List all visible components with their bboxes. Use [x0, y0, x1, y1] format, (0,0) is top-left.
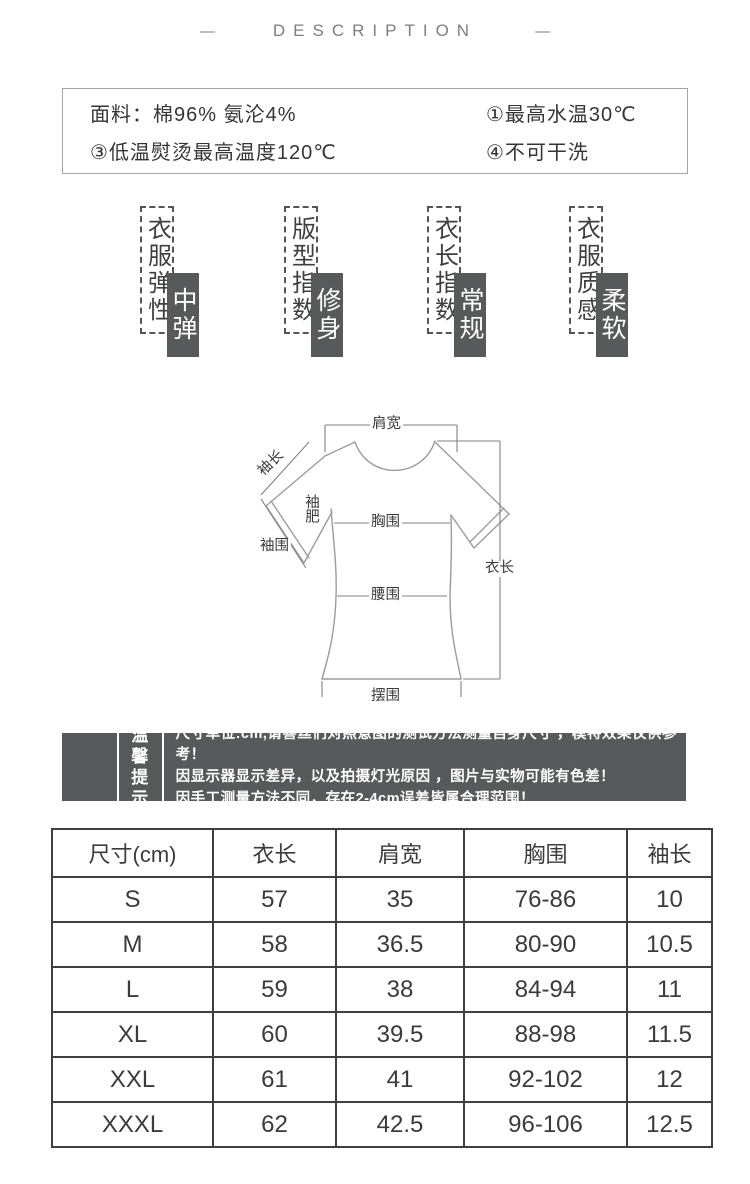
- cell-sleeve: 10.5: [627, 922, 712, 967]
- sleeve-width-label: 袖肥: [302, 492, 318, 525]
- badge-line-1: 温馨: [123, 725, 158, 768]
- table-row-xxl: XXL 61 41 92-102 12: [52, 1057, 712, 1102]
- cell-length: 61: [213, 1057, 336, 1102]
- cell-sleeve: 11: [627, 967, 712, 1012]
- col-header-sleeve: 袖长: [627, 829, 712, 877]
- table-row-m: M 58 36.5 80-90 10.5: [52, 922, 712, 967]
- cell-sleeve: 10: [627, 877, 712, 922]
- hem-label: 摆围: [369, 689, 402, 705]
- cell-length: 62: [213, 1102, 336, 1147]
- table-row-xl: XL 60 39.5 88-98 11.5: [52, 1012, 712, 1057]
- cell-sleeve: 12.5: [627, 1102, 712, 1147]
- cell-sleeve: 12: [627, 1057, 712, 1102]
- cell-shoulder: 36.5: [336, 922, 464, 967]
- badge-line-2: 提示: [123, 767, 158, 810]
- tips-line-2: 因显示器显示差异，以及拍摄灯光原因 ，图片与实物可能有色差！: [176, 767, 686, 789]
- care-info-box: 面料：棉96% 氨沦4% ①最高水温30℃ ③低温熨烫最高温度120℃ ④不可干…: [62, 88, 688, 174]
- cell-chest: 92-102: [464, 1057, 627, 1102]
- tips-line-1: 尺寸单位:cm,请喜丝们对照意图的测试方法测量自身尺寸 ，模特效果仅供参考！: [176, 724, 686, 768]
- shoulder-width-label: 肩宽: [370, 417, 403, 433]
- size-table: 尺寸(cm) 衣长 肩宽 胸围 袖长 S 57 35 76-86 10 M 58…: [51, 828, 713, 1148]
- cell-chest: 76-86: [464, 877, 627, 922]
- cell-size: XXL: [52, 1057, 213, 1102]
- warm-tips-badge: 温馨 提示: [117, 721, 164, 814]
- cell-size: M: [52, 922, 213, 967]
- care-no-dry-clean: ④不可干洗: [486, 136, 687, 165]
- cell-shoulder: 42.5: [336, 1102, 464, 1147]
- description-header: — DESCRIPTION —: [0, 16, 750, 46]
- attribute-fit-index: 版型指数 修身: [284, 206, 346, 358]
- warm-tips-bar: 温馨 提示 尺寸单位:cm,请喜丝们对照意图的测试方法测量自身尺寸 ，模特效果仅…: [62, 733, 686, 801]
- attribute-length-index: 衣长指数 常规: [427, 206, 489, 358]
- cell-sleeve: 11.5: [627, 1012, 712, 1057]
- col-header-size: 尺寸(cm): [52, 829, 213, 877]
- header-left-dash: —: [200, 23, 215, 40]
- cell-chest: 80-90: [464, 922, 627, 967]
- size-table-header-row: 尺寸(cm) 衣长 肩宽 胸围 袖长: [52, 829, 712, 877]
- cell-chest: 88-98: [464, 1012, 627, 1057]
- attribute-elasticity: 衣服弹性 中弹: [140, 206, 202, 358]
- care-max-water-temp: ①最高水温30℃: [486, 98, 687, 127]
- header-right-dash: —: [535, 23, 550, 40]
- warm-tips-text: 尺寸单位:cm,请喜丝们对照意图的测试方法测量自身尺寸 ，模特效果仅供参考！ 因…: [176, 724, 686, 811]
- tips-line-3: 因手工测量方法不同，存在2-4cm误差皆属合理范围！: [176, 789, 686, 811]
- col-header-length: 衣长: [213, 829, 336, 877]
- cell-length: 60: [213, 1012, 336, 1057]
- fabric-composition: 面料：棉96% 氨沦4%: [90, 98, 486, 127]
- page-title: DESCRIPTION: [273, 21, 477, 41]
- chest-label: 胸围: [369, 515, 402, 531]
- table-row-l: L 59 38 84-94 11: [52, 967, 712, 1012]
- attribute-value: 常规: [454, 273, 486, 357]
- cell-shoulder: 35: [336, 877, 464, 922]
- garment-length-label: 衣长: [483, 561, 516, 577]
- cell-length: 59: [213, 967, 336, 1012]
- cell-chest: 96-106: [464, 1102, 627, 1147]
- cell-size: XXXL: [52, 1102, 213, 1147]
- attribute-texture: 衣服质感 柔软: [569, 206, 631, 358]
- cell-shoulder: 39.5: [336, 1012, 464, 1057]
- cuff-label: 袖围: [258, 539, 291, 555]
- col-header-chest: 胸围: [464, 829, 627, 877]
- table-row-s: S 57 35 76-86 10: [52, 877, 712, 922]
- cell-size: XL: [52, 1012, 213, 1057]
- attribute-value: 修身: [311, 273, 343, 357]
- care-ironing-temp: ③低温熨烫最高温度120℃: [90, 136, 486, 165]
- cell-chest: 84-94: [464, 967, 627, 1012]
- attribute-value: 柔软: [596, 273, 628, 357]
- cell-size: S: [52, 877, 213, 922]
- col-header-shoulder: 肩宽: [336, 829, 464, 877]
- attribute-value: 中弹: [167, 273, 199, 357]
- cell-shoulder: 38: [336, 967, 464, 1012]
- cell-length: 58: [213, 922, 336, 967]
- measurement-diagram: 肩宽 袖长 袖肥 胸围 袖围 衣长 腰围 摆围: [230, 396, 540, 726]
- waist-label: 腰围: [369, 588, 402, 604]
- cell-size: L: [52, 967, 213, 1012]
- table-row-xxxl: XXXL 62 42.5 96-106 12.5: [52, 1102, 712, 1147]
- cell-shoulder: 41: [336, 1057, 464, 1102]
- cell-length: 57: [213, 877, 336, 922]
